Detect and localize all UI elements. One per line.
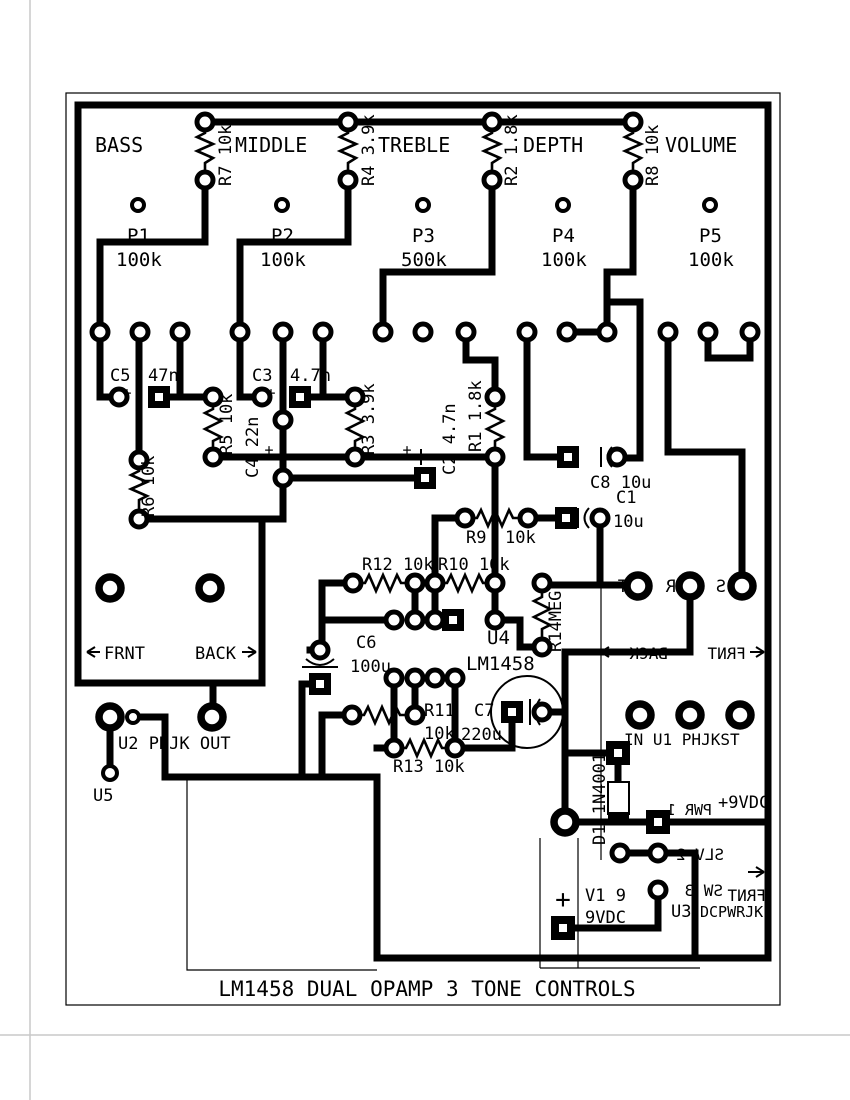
label-p1-value: 100k — [116, 249, 162, 271]
section-label-bass: BASS — [95, 133, 143, 157]
arrow-left-icon — [87, 647, 100, 657]
pad-u1-s — [729, 704, 751, 726]
label-r3: R3 3.9k — [359, 383, 379, 455]
pad — [559, 324, 575, 340]
label-r4: R4 3.9k — [359, 114, 379, 186]
battery-plus-mark: + — [555, 885, 571, 915]
pad-out-sleeve — [99, 706, 121, 728]
silk-jack-r-mirrored: R — [665, 577, 676, 597]
pad — [415, 324, 431, 340]
pcb-layout-page: BASS MIDDLE TREBLE DEPTH VOLUME R7 10k R… — [0, 0, 850, 1100]
pad — [92, 324, 108, 340]
pad — [660, 324, 676, 340]
label-r13: R13 10k — [393, 757, 465, 777]
label-c6-value: 100u — [350, 657, 391, 677]
label-r11: R11 — [424, 701, 455, 721]
silk-pwr-mirrored: PWR 1 — [667, 801, 712, 819]
pad — [447, 670, 463, 686]
label-r5: R5 10k — [217, 394, 237, 455]
pad — [625, 114, 641, 130]
pad-u1 — [679, 704, 701, 726]
label-c1: C1 — [616, 488, 636, 508]
pad — [599, 324, 615, 340]
trace-sleeve — [668, 332, 742, 586]
trace-c8-square — [527, 332, 556, 457]
pad-square — [646, 810, 670, 834]
pad — [197, 114, 213, 130]
label-c6: C6 — [356, 633, 376, 653]
label-c7-value: 220u — [461, 725, 502, 745]
pad — [534, 575, 550, 591]
arrow-right-icon — [242, 647, 256, 657]
label-r2: R2 1.8k — [502, 114, 522, 186]
pad — [386, 740, 402, 756]
label-r9-value: 10k — [505, 528, 536, 548]
silk-back-left: BACK — [195, 644, 237, 664]
label-r12: R12 10k — [362, 555, 434, 575]
section-label-volume: VOLUME — [665, 133, 737, 157]
pad — [275, 412, 291, 428]
section-label-depth: DEPTH — [523, 133, 583, 157]
pad-jack-tip — [627, 575, 649, 597]
board-title: LM1458 DUAL OPAMP 3 TONE CONTROLS — [218, 977, 635, 1001]
pad-power — [554, 811, 576, 833]
label-u5: U5 — [93, 786, 113, 806]
pad-jack-sleeve — [731, 575, 753, 597]
label-p3-value: 500k — [401, 249, 447, 271]
label-c4: C4 22n — [243, 417, 263, 478]
pad — [344, 707, 360, 723]
pad — [625, 172, 641, 188]
pad — [487, 449, 503, 465]
pad — [487, 612, 503, 628]
pad-square — [501, 701, 523, 723]
pad-large — [199, 577, 221, 599]
enclosure-outline — [187, 777, 377, 970]
pad — [700, 324, 716, 340]
label-r10: R10 10k — [438, 555, 510, 575]
label-c3: C3 — [252, 366, 272, 386]
pad — [407, 670, 423, 686]
pad — [612, 845, 628, 861]
pad-u5 — [103, 766, 117, 780]
label-r7: R7 10k — [216, 125, 236, 186]
pad — [484, 172, 500, 188]
label-9vdc: +9VDC — [718, 793, 769, 813]
label-u3-part: DCPWRJK — [700, 903, 763, 921]
pad — [592, 510, 608, 526]
pad — [458, 324, 474, 340]
pad — [340, 172, 356, 188]
pad — [172, 324, 188, 340]
pad-out-tip — [201, 706, 223, 728]
label-r8: R8 10k — [643, 125, 663, 186]
label-c2: C2 4.7n — [440, 403, 460, 475]
pad — [375, 324, 391, 340]
label-r11-value: 10k — [424, 724, 455, 744]
pad-square — [148, 386, 170, 408]
page-frame — [0, 0, 850, 1100]
label-p3: P3 — [412, 225, 435, 247]
label-v1: V1 9 — [585, 886, 626, 906]
label-c7: C7 — [474, 701, 494, 721]
pad — [487, 575, 503, 591]
label-c5: C5 — [110, 366, 130, 386]
section-label-treble: TREBLE — [378, 133, 450, 157]
silk-jack-s-mirrored: S — [716, 577, 726, 597]
silk-sw-mirrored: SW 3 — [684, 881, 723, 900]
pad — [132, 324, 148, 340]
c2-plus-mark: + — [402, 441, 411, 459]
pad — [386, 612, 402, 628]
pad — [197, 172, 213, 188]
label-p1: P1 — [127, 225, 150, 247]
silk-slv-mirrored: SLV 2 — [676, 845, 724, 864]
pad-square — [551, 916, 575, 940]
pad — [232, 324, 248, 340]
pad — [407, 575, 423, 591]
pad — [407, 707, 423, 723]
pad — [407, 612, 423, 628]
label-r6: R6 10k — [139, 456, 159, 517]
pad — [609, 449, 625, 465]
pad — [457, 510, 473, 526]
pad — [275, 470, 291, 486]
arrow-right-icon — [750, 647, 764, 657]
pad — [315, 324, 331, 340]
label-p4-value: 100k — [541, 249, 587, 271]
pad-square — [414, 467, 436, 489]
label-v1-voltage: 9VDC — [585, 908, 626, 928]
pad — [345, 575, 361, 591]
pad-square — [309, 673, 331, 695]
label-p2-value: 100k — [260, 249, 306, 271]
label-p5: P5 — [699, 225, 722, 247]
pad — [650, 882, 666, 898]
pad-square — [289, 386, 311, 408]
section-label-middle: MIDDLE — [235, 133, 307, 157]
label-c1-value: 10u — [613, 512, 644, 532]
label-c3-value: 4.7n — [290, 366, 331, 386]
pot-wiper-pad — [276, 199, 288, 211]
pot-wiper-pad — [557, 199, 569, 211]
pad — [275, 324, 291, 340]
trace-p4-leg — [607, 180, 633, 332]
pad — [520, 510, 536, 526]
arrow-right-icon — [748, 867, 764, 877]
pad — [312, 642, 328, 658]
pad — [534, 704, 550, 720]
pad — [340, 114, 356, 130]
label-u3: U3 — [671, 902, 691, 922]
pot-wiper-pad — [417, 199, 429, 211]
c3-plus-mark: + — [266, 384, 275, 402]
label-u4-part: LM1458 — [466, 653, 535, 675]
label-r1: R1 1.8k — [466, 380, 486, 452]
trace-c6-square — [302, 684, 320, 777]
label-r14: R14MEG — [546, 591, 566, 652]
pcb-layout-svg: BASS MIDDLE TREBLE DEPTH VOLUME R7 10k R… — [0, 0, 850, 1100]
pad — [742, 324, 758, 340]
pot-wiper-pad — [132, 199, 144, 211]
pad — [427, 575, 443, 591]
pot-wiper-pad — [704, 199, 716, 211]
d1-cathode-band — [608, 812, 629, 823]
d1-body — [608, 782, 629, 814]
pad — [650, 845, 666, 861]
silk-frnt-left: FRNT — [104, 644, 145, 664]
c5-plus-mark: + — [122, 384, 131, 402]
pad — [487, 389, 503, 405]
pad-square — [555, 507, 577, 529]
silk-jack-t-mirrored: T — [618, 577, 628, 597]
silk-back-mirrored: BACK — [629, 644, 668, 663]
c4-plus-mark: + — [264, 441, 273, 459]
label-p5-value: 100k — [688, 249, 734, 271]
pad-jack-ring — [679, 575, 701, 597]
label-p4: P4 — [552, 225, 575, 247]
pad-square — [557, 446, 579, 468]
label-c5-value: 47n — [148, 366, 179, 386]
label-p2: P2 — [271, 225, 294, 247]
label-u1: IN U1 PHJKST — [624, 730, 740, 749]
pad-in — [629, 704, 651, 726]
label-r9: R9 — [466, 528, 486, 548]
c1-symbol — [578, 508, 589, 528]
pad — [127, 711, 139, 723]
pad — [519, 324, 535, 340]
pad — [484, 114, 500, 130]
label-u4: U4 — [487, 627, 510, 649]
pad — [427, 612, 443, 628]
label-d1: D1 1N4001 — [590, 753, 610, 845]
pad-large — [99, 577, 121, 599]
silk-frnt-mirrored: FRNT — [707, 644, 746, 663]
pad — [427, 670, 443, 686]
label-u2: U2 PHJK OUT — [118, 734, 231, 754]
